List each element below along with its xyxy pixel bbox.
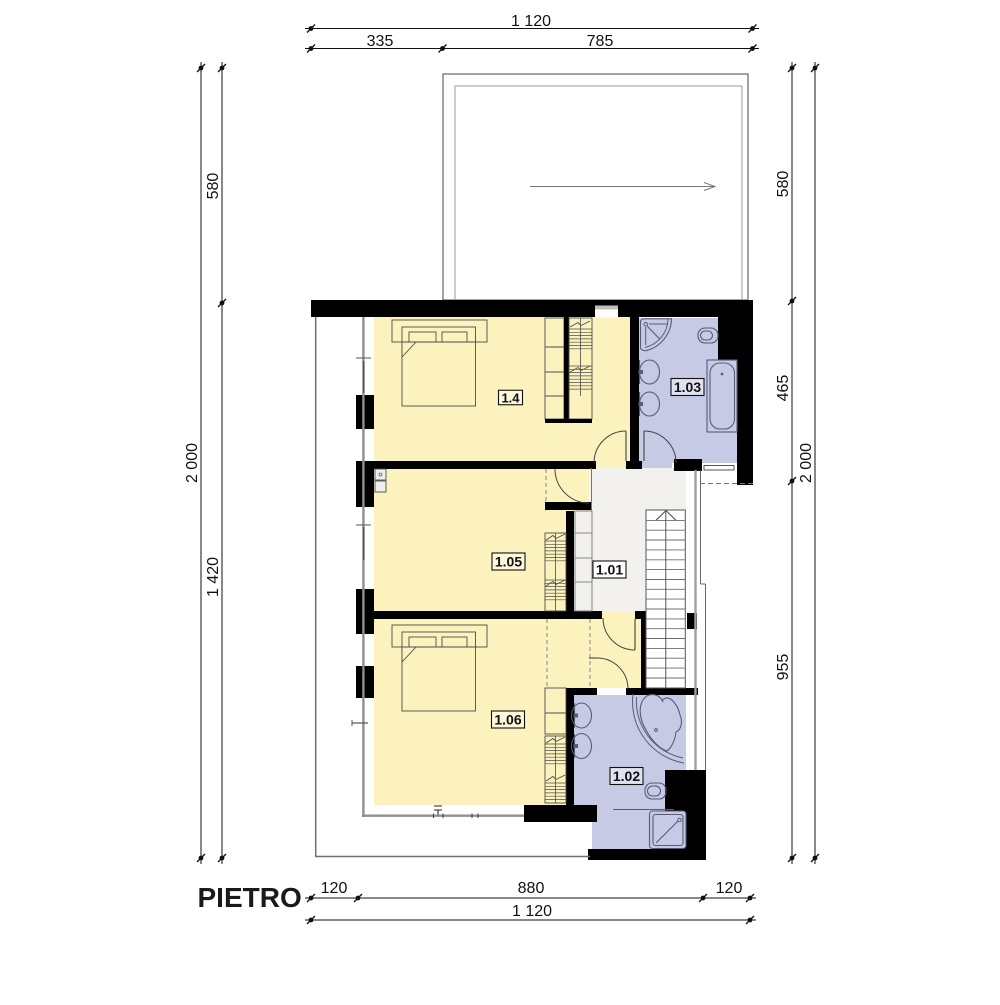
svg-text:1 120: 1 120	[512, 903, 552, 920]
svg-text:2 000: 2 000	[798, 443, 815, 483]
svg-text:1.01: 1.01	[596, 562, 623, 578]
svg-text:120: 120	[321, 880, 348, 897]
svg-text:580: 580	[205, 173, 222, 200]
svg-text:880: 880	[518, 880, 545, 897]
svg-text:120: 120	[716, 880, 743, 897]
svg-text:1 120: 1 120	[511, 13, 551, 30]
svg-text:1.4: 1.4	[501, 391, 520, 406]
svg-text:1.03: 1.03	[674, 379, 701, 395]
svg-text:1 420: 1 420	[205, 557, 222, 597]
svg-text:580: 580	[775, 171, 792, 198]
svg-text:1.06: 1.06	[494, 712, 521, 728]
svg-text:785: 785	[587, 33, 614, 50]
svg-text:1.05: 1.05	[495, 554, 522, 570]
svg-text:PIETRO: PIETRO	[198, 882, 302, 913]
svg-text:335: 335	[367, 33, 394, 50]
svg-text:955: 955	[775, 654, 792, 681]
svg-text:465: 465	[775, 375, 792, 402]
svg-text:1.02: 1.02	[613, 768, 640, 784]
svg-text:2 000: 2 000	[184, 443, 201, 483]
